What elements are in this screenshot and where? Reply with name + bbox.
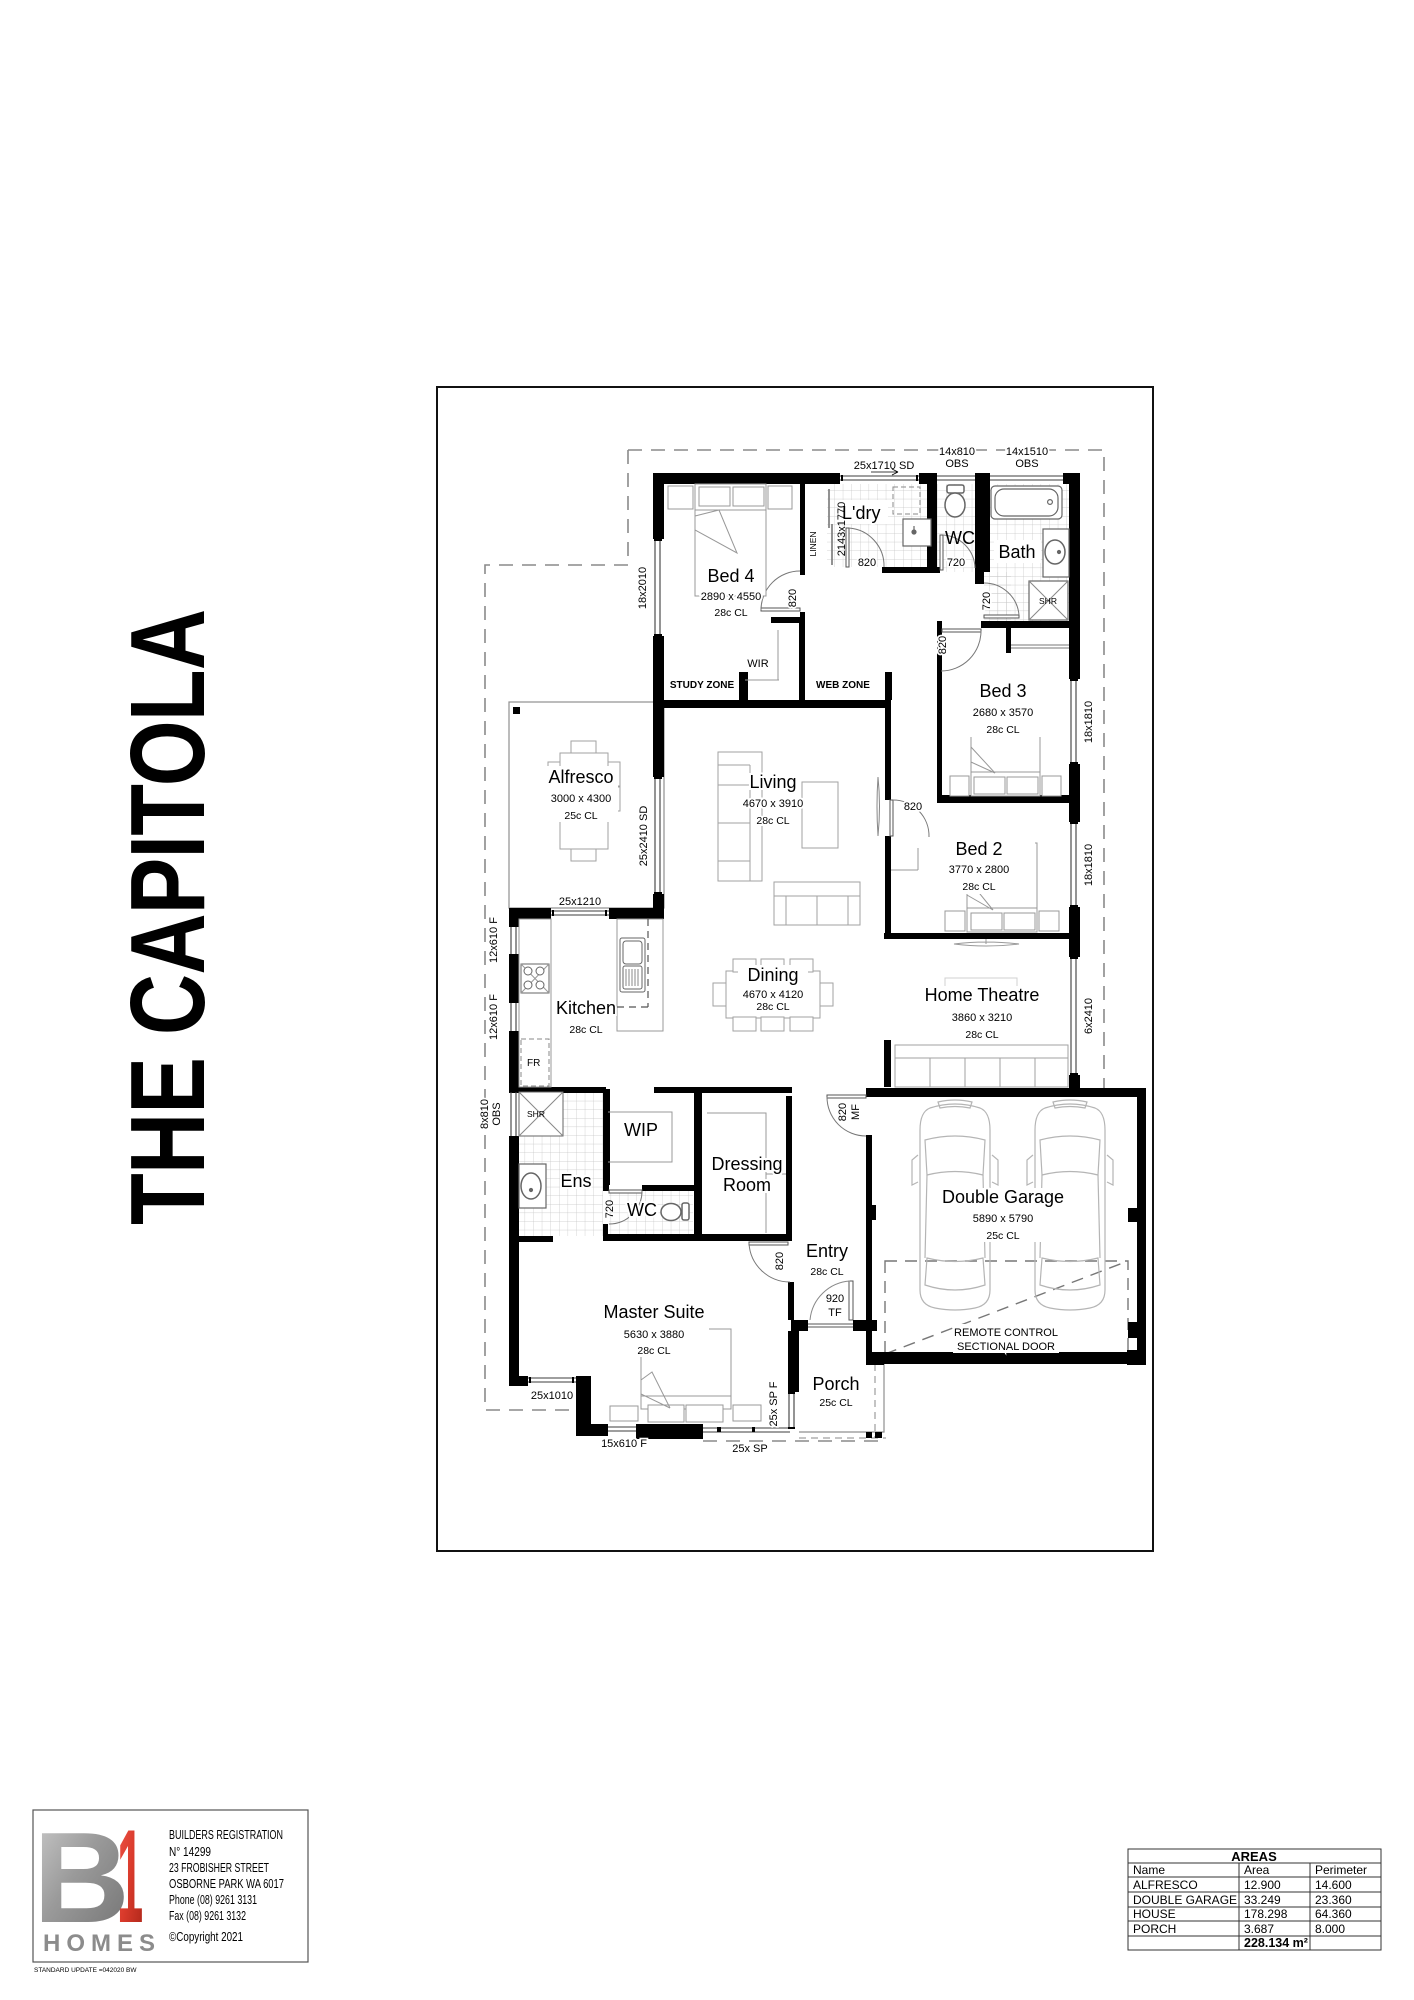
svg-text:FR: FR	[527, 1058, 540, 1069]
svg-text:Entry: Entry	[806, 1241, 848, 1261]
svg-text:Perimeter: Perimeter	[1315, 1863, 1367, 1877]
svg-text:25x SP F: 25x SP F	[768, 1381, 780, 1426]
svg-text:4670 x 3910: 4670 x 3910	[743, 798, 804, 810]
svg-text:Dressing: Dressing	[711, 1154, 782, 1174]
svg-text:STANDARD UPDATE =042020 BW: STANDARD UPDATE =042020 BW	[34, 1967, 137, 1974]
svg-text:25x1010: 25x1010	[531, 1390, 573, 1402]
svg-text:WIR: WIR	[747, 658, 768, 670]
svg-text:Living: Living	[749, 772, 796, 792]
svg-text:820: 820	[937, 636, 949, 654]
svg-text:15x610 F: 15x610 F	[601, 1438, 647, 1450]
svg-text:12.900: 12.900	[1244, 1878, 1281, 1892]
svg-text:TF: TF	[828, 1307, 842, 1319]
svg-text:14.600: 14.600	[1315, 1878, 1352, 1892]
svg-text:4670 x 4120: 4670 x 4120	[743, 989, 804, 1001]
svg-text:25x SP: 25x SP	[732, 1443, 767, 1455]
svg-text:Fax (08) 9261 3132: Fax (08) 9261 3132	[169, 1909, 246, 1923]
svg-text:OBS: OBS	[491, 1102, 503, 1125]
svg-text:8x810: 8x810	[479, 1099, 491, 1129]
svg-text:6x2410: 6x2410	[1083, 998, 1095, 1034]
svg-text:©Copyright 2021: ©Copyright 2021	[169, 1929, 243, 1944]
svg-text:Bed 2: Bed 2	[955, 839, 1002, 859]
svg-text:720: 720	[604, 1200, 616, 1218]
svg-text:28c CL: 28c CL	[965, 1029, 998, 1041]
svg-text:23 FROBISHER STREET: 23 FROBISHER STREET	[169, 1861, 269, 1875]
svg-text:12x610 F: 12x610 F	[488, 994, 500, 1040]
svg-text:18x1810: 18x1810	[1083, 701, 1095, 743]
svg-text:25x1710 SD: 25x1710 SD	[854, 460, 915, 472]
svg-text:25c CL: 25c CL	[819, 1397, 852, 1409]
svg-text:Room: Room	[723, 1175, 771, 1195]
svg-text:5890 x 5790: 5890 x 5790	[973, 1213, 1034, 1225]
svg-text:18x1810: 18x1810	[1083, 844, 1095, 886]
svg-text:PORCH: PORCH	[1133, 1922, 1176, 1936]
svg-text:720: 720	[947, 557, 965, 569]
svg-text:820: 820	[858, 557, 876, 569]
svg-text:WEB ZONE: WEB ZONE	[816, 680, 870, 691]
svg-text:WC: WC	[627, 1200, 657, 1220]
svg-text:DOUBLE GARAGE: DOUBLE GARAGE	[1133, 1893, 1237, 1907]
svg-text:SHR: SHR	[527, 1109, 545, 1119]
svg-text:820: 820	[837, 1103, 849, 1121]
svg-text:B: B	[33, 1805, 130, 1949]
svg-text:25x2410 SD: 25x2410 SD	[638, 806, 650, 867]
svg-text:28c CL: 28c CL	[756, 1001, 789, 1013]
svg-text:HOMES: HOMES	[43, 1930, 160, 1957]
svg-text:3.687: 3.687	[1244, 1922, 1274, 1936]
svg-text:MF: MF	[850, 1104, 862, 1120]
svg-text:12x610 F: 12x610 F	[488, 917, 500, 963]
svg-text:23.360: 23.360	[1315, 1893, 1352, 1907]
svg-text:920: 920	[826, 1293, 844, 1305]
svg-text:2680 x 3570: 2680 x 3570	[973, 707, 1034, 719]
svg-text:Ens: Ens	[560, 1171, 591, 1191]
svg-text:820: 820	[904, 801, 922, 813]
svg-text:14x810: 14x810	[939, 446, 975, 458]
svg-text:28c CL: 28c CL	[714, 607, 747, 619]
svg-text:33.249: 33.249	[1244, 1893, 1281, 1907]
svg-text:5630 x 3880: 5630 x 3880	[624, 1329, 685, 1341]
svg-text:Porch: Porch	[812, 1374, 859, 1394]
svg-text:Alfresco: Alfresco	[548, 767, 613, 787]
svg-text:28c CL: 28c CL	[637, 1345, 670, 1357]
svg-text:OBS: OBS	[945, 458, 968, 470]
svg-text:Bed 4: Bed 4	[707, 566, 754, 586]
svg-text:28c CL: 28c CL	[569, 1024, 602, 1036]
svg-text:820: 820	[774, 1252, 786, 1270]
svg-text:64.360: 64.360	[1315, 1907, 1352, 1921]
svg-text:178.298: 178.298	[1244, 1907, 1288, 1921]
svg-text:Double Garage: Double Garage	[942, 1187, 1064, 1207]
svg-text:Dining: Dining	[747, 965, 798, 985]
svg-text:SHR: SHR	[1039, 596, 1057, 606]
svg-text:STUDY ZONE: STUDY ZONE	[670, 680, 735, 691]
svg-text:3860 x 3210: 3860 x 3210	[952, 1012, 1013, 1024]
svg-text:Kitchen: Kitchen	[556, 998, 616, 1018]
svg-text:N° 14299: N° 14299	[169, 1845, 211, 1859]
svg-text:2143x1770: 2143x1770	[836, 502, 848, 556]
svg-text:REMOTE CONTROL: REMOTE CONTROL	[954, 1327, 1058, 1339]
svg-text:WC: WC	[945, 528, 975, 548]
svg-text:OSBORNE PARK WA 6017: OSBORNE PARK WA 6017	[169, 1877, 284, 1891]
svg-text:28c CL: 28c CL	[986, 724, 1019, 736]
svg-text:25c CL: 25c CL	[564, 810, 597, 822]
svg-text:820: 820	[787, 589, 799, 607]
svg-text:Bath: Bath	[998, 542, 1035, 562]
svg-text:Area: Area	[1244, 1863, 1270, 1877]
svg-text:2890 x 4550: 2890 x 4550	[701, 591, 762, 603]
svg-text:18x2010: 18x2010	[637, 567, 649, 609]
svg-text:Home Theatre: Home Theatre	[925, 985, 1040, 1005]
svg-text:HOUSE: HOUSE	[1133, 1907, 1176, 1921]
svg-text:25c CL: 25c CL	[986, 1230, 1019, 1242]
svg-text:Bed 3: Bed 3	[979, 681, 1026, 701]
svg-text:228.134 m²: 228.134 m²	[1244, 1936, 1308, 1950]
svg-text:3000 x 4300: 3000 x 4300	[551, 793, 612, 805]
svg-text:28c CL: 28c CL	[962, 881, 995, 893]
svg-text:720: 720	[981, 592, 993, 610]
svg-text:28c CL: 28c CL	[756, 815, 789, 827]
svg-text:ALFRESCO: ALFRESCO	[1133, 1878, 1198, 1892]
svg-text:SECTIONAL DOOR: SECTIONAL DOOR	[957, 1341, 1055, 1353]
svg-text:25x1210: 25x1210	[559, 896, 601, 908]
svg-text:LINEN: LINEN	[808, 531, 818, 556]
svg-text:3770 x 2800: 3770 x 2800	[949, 864, 1010, 876]
svg-text:14x1510: 14x1510	[1006, 446, 1048, 458]
svg-text:AREAS: AREAS	[1231, 1849, 1277, 1864]
svg-text:Phone (08) 9261 3131: Phone (08) 9261 3131	[169, 1893, 257, 1907]
svg-text:WIP: WIP	[624, 1120, 658, 1140]
svg-text:OBS: OBS	[1015, 458, 1038, 470]
svg-text:Name: Name	[1133, 1863, 1165, 1877]
svg-text:Master Suite: Master Suite	[603, 1302, 704, 1322]
svg-text:8.000: 8.000	[1315, 1922, 1345, 1936]
svg-text:28c CL: 28c CL	[810, 1266, 843, 1278]
svg-text:THE CAPITOLA: THE CAPITOLA	[109, 610, 227, 1225]
svg-text:BUILDERS REGISTRATION: BUILDERS REGISTRATION	[169, 1828, 283, 1842]
